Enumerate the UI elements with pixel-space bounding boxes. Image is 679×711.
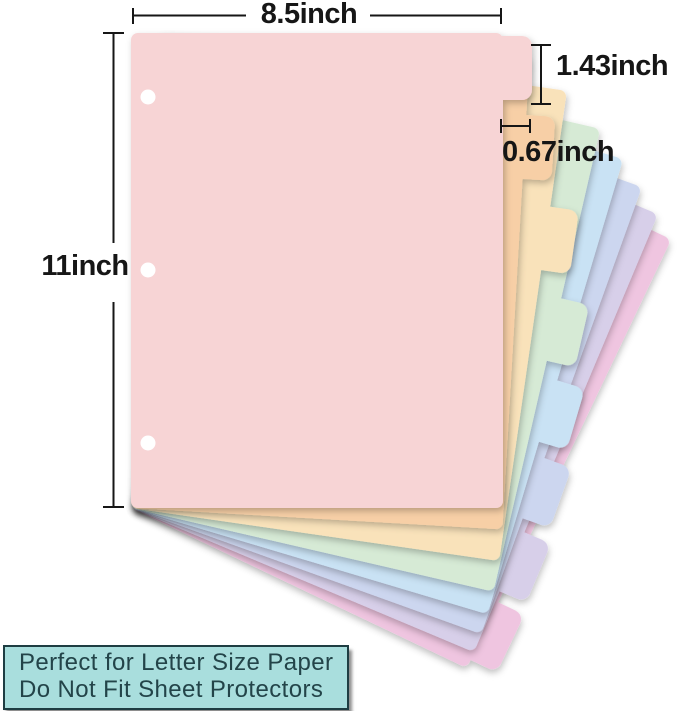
sheet-tab-pink [488, 36, 532, 100]
divider-sheet-pink [131, 33, 532, 508]
note-box: Perfect for Letter Size Paper Do Not Fit… [3, 645, 349, 710]
product-image: 8.5inch 11inch 1.43inch 0.67inch Perfect… [0, 0, 679, 711]
sheet-height-label: 11inch [26, 250, 144, 283]
tab-height-label: 1.43inch [556, 50, 668, 83]
sheets-layer [131, 33, 679, 681]
sheet-tab-cream [526, 205, 579, 275]
divider-illustration [0, 0, 679, 711]
punch-hole-1 [141, 90, 156, 105]
note-line-1: Perfect for Letter Size Paper [19, 649, 343, 676]
sheet-body-pink [131, 33, 503, 508]
punch-hole-3 [141, 436, 156, 451]
tab-depth-label: 0.67inch [502, 136, 614, 169]
sheet-width-label: 8.5inch [244, 0, 374, 31]
note-line-2: Do Not Fit Sheet Protectors [19, 676, 343, 703]
